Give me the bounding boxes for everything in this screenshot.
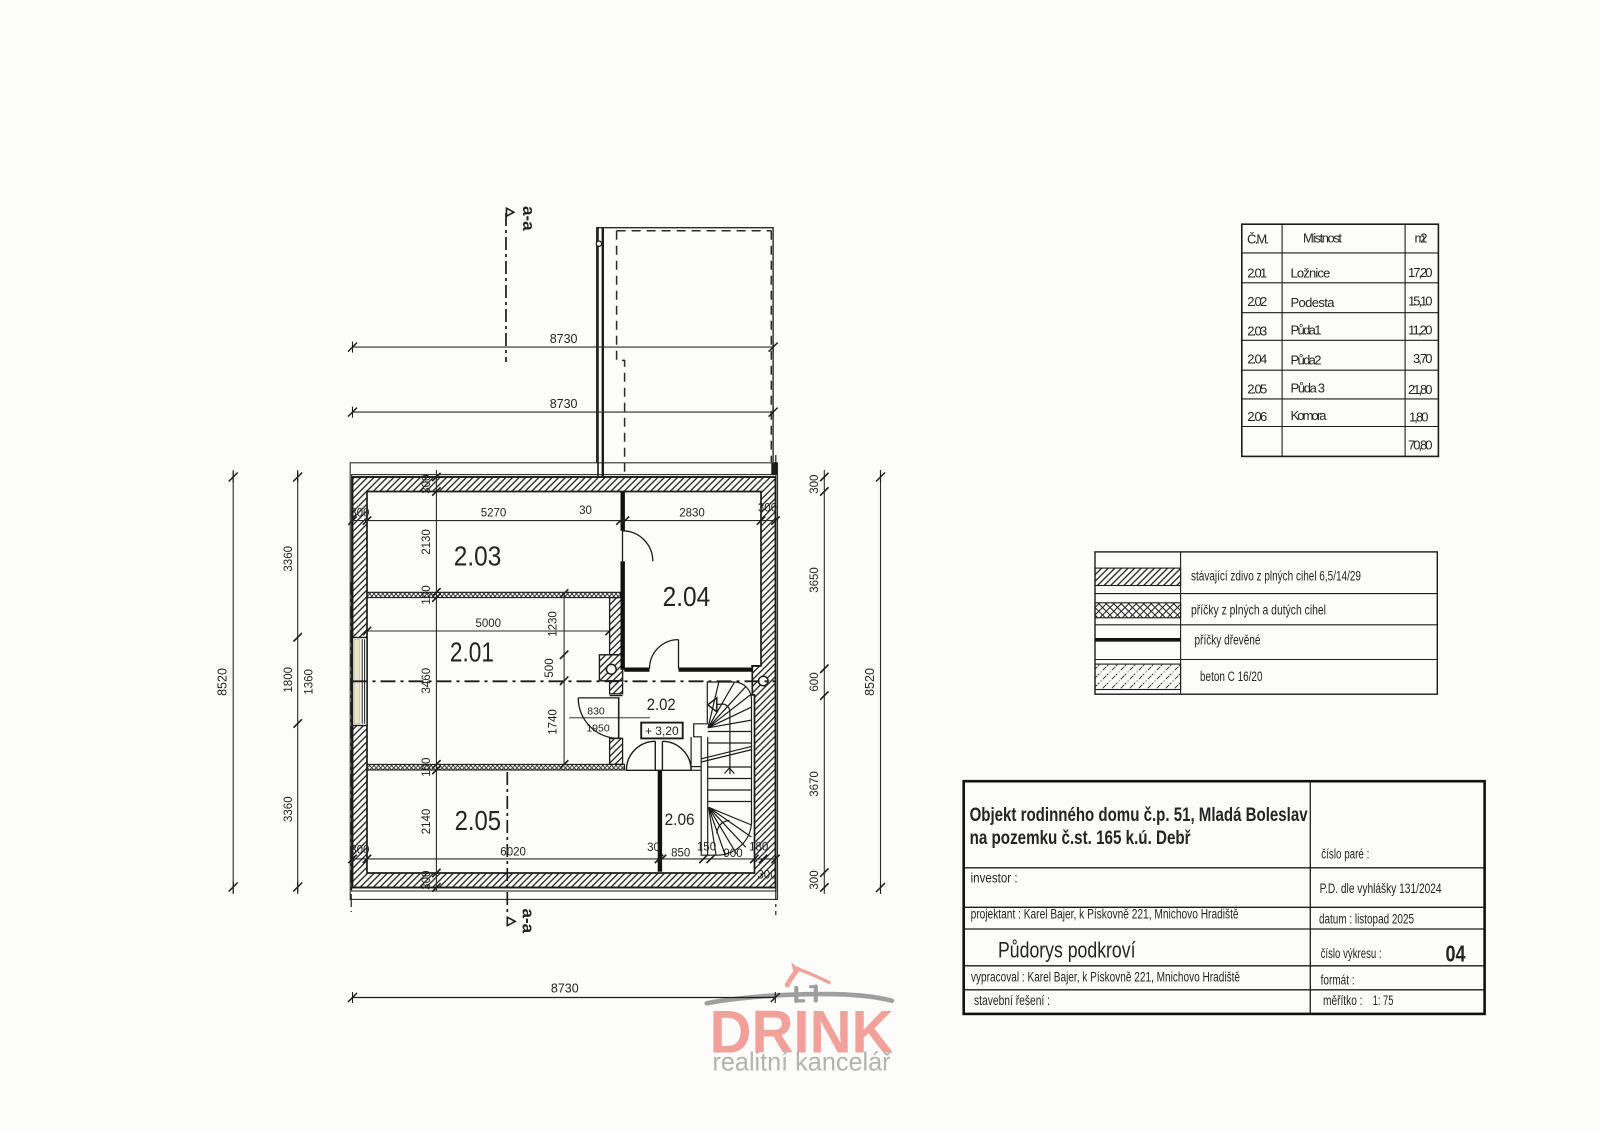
svg-text:17,20: 17,20 xyxy=(1408,265,1433,280)
svg-text:1360: 1360 xyxy=(303,669,315,695)
svg-text:+ 3,20: + 3,20 xyxy=(645,724,679,738)
svg-text:2.01: 2.01 xyxy=(450,637,494,668)
svg-text:realitní kancelář: realitní kancelář xyxy=(713,1047,892,1077)
svg-text:2.05: 2.05 xyxy=(1247,382,1267,397)
svg-text:Č.M.: Č.M. xyxy=(1247,232,1269,247)
svg-text:8520: 8520 xyxy=(863,668,877,696)
svg-text:70,80: 70,80 xyxy=(1408,438,1433,453)
svg-text:8730: 8730 xyxy=(550,397,578,411)
svg-text:beton C 16/20: beton C 16/20 xyxy=(1200,669,1263,684)
svg-text:150: 150 xyxy=(697,842,716,854)
svg-text:1,80: 1,80 xyxy=(1409,410,1429,425)
svg-text:300: 300 xyxy=(421,475,433,494)
svg-text:04: 04 xyxy=(1446,941,1466,967)
svg-text:30: 30 xyxy=(647,842,660,854)
svg-text:3650: 3650 xyxy=(809,567,821,593)
svg-text:2.04: 2.04 xyxy=(663,581,711,612)
svg-text:Místnost: Místnost xyxy=(1303,231,1342,246)
svg-text:300: 300 xyxy=(350,845,369,857)
svg-text:300: 300 xyxy=(757,870,776,882)
svg-text:15,10: 15,10 xyxy=(1408,294,1433,309)
svg-text:600: 600 xyxy=(809,672,821,691)
svg-text:3670: 3670 xyxy=(809,771,821,797)
svg-text:datum : listopad 2025: datum : listopad 2025 xyxy=(1319,912,1414,927)
svg-text:Půdorys podkroví: Půdorys podkroví xyxy=(998,938,1136,963)
svg-text:projektant : Karel Bajer, k Pí: projektant : Karel Bajer, k Pískovně 221… xyxy=(971,907,1239,922)
svg-text:vypracoval : Karel Bajer, k Pí: vypracoval : Karel Bajer, k Pískovně 221… xyxy=(971,970,1240,985)
svg-text:2.06: 2.06 xyxy=(665,810,695,829)
svg-text:stávající zdivo z plných cihel: stávající zdivo z plných cihel 6,5/14/29 xyxy=(1191,569,1361,584)
svg-text:Půda1: Půda1 xyxy=(1291,323,1322,338)
svg-text:1740: 1740 xyxy=(548,709,560,735)
svg-text:8730: 8730 xyxy=(551,982,579,996)
svg-text:a-a: a-a xyxy=(519,909,538,934)
svg-text:3460: 3460 xyxy=(421,668,433,694)
svg-text:Půda 3: Půda 3 xyxy=(1291,381,1326,396)
svg-text:1800: 1800 xyxy=(283,667,295,693)
svg-text:300: 300 xyxy=(809,870,821,889)
svg-text:a-a: a-a xyxy=(519,206,538,231)
svg-text:3360: 3360 xyxy=(283,796,295,822)
svg-text:1950: 1950 xyxy=(586,723,610,735)
svg-text:2.02: 2.02 xyxy=(647,695,676,714)
svg-text:na pozemku č.st. 165 k.ú. Debř: na pozemku č.st. 165 k.ú. Debř xyxy=(970,828,1191,849)
svg-text:stavební řešení :: stavební řešení : xyxy=(974,993,1050,1008)
svg-text:8730: 8730 xyxy=(550,332,578,346)
svg-text:5270: 5270 xyxy=(481,508,507,520)
svg-text:11,20: 11,20 xyxy=(1408,323,1433,338)
svg-text:příčky z plných a dutých cihel: příčky z plných a dutých cihel xyxy=(1191,603,1326,618)
svg-text:2.03: 2.03 xyxy=(454,541,502,572)
svg-text:2.03: 2.03 xyxy=(1247,324,1267,339)
svg-text:2130: 2130 xyxy=(421,529,433,555)
svg-text:100: 100 xyxy=(421,758,433,777)
svg-text:180: 180 xyxy=(749,842,768,854)
svg-text:Půda2: Půda2 xyxy=(1291,353,1322,368)
svg-text:8520: 8520 xyxy=(216,668,230,696)
svg-text:příčky dřevěné: příčky dřevěné xyxy=(1195,633,1261,648)
svg-text:1230: 1230 xyxy=(548,611,560,637)
svg-text:číslo výkresu :: číslo výkresu : xyxy=(1321,946,1382,961)
svg-text:2830: 2830 xyxy=(679,508,705,520)
svg-text:2.04: 2.04 xyxy=(1247,352,1267,367)
svg-text:5000: 5000 xyxy=(476,618,502,630)
svg-text:500: 500 xyxy=(544,658,556,677)
svg-text:2.05: 2.05 xyxy=(455,805,502,836)
svg-text:3360: 3360 xyxy=(283,546,295,572)
svg-text:2.01: 2.01 xyxy=(1247,266,1267,281)
svg-text:3,70: 3,70 xyxy=(1413,351,1433,366)
svg-text:300: 300 xyxy=(758,503,777,515)
svg-text:6020: 6020 xyxy=(500,847,526,859)
svg-text:Ložnice: Ložnice xyxy=(1291,266,1331,281)
svg-text:830: 830 xyxy=(587,706,605,718)
svg-text:900: 900 xyxy=(723,848,742,860)
svg-text:30: 30 xyxy=(579,505,592,517)
svg-text:Podesta: Podesta xyxy=(1291,295,1336,310)
svg-text:P.D. dle vyhlášky 131/2024: P.D. dle vyhlášky 131/2024 xyxy=(1320,881,1442,896)
svg-text:300: 300 xyxy=(809,475,821,494)
svg-text:Objekt rodinného domu č.p. 51,: Objekt rodinného domu č.p. 51, Mladá Bol… xyxy=(970,805,1308,826)
svg-text:2.02: 2.02 xyxy=(1247,294,1267,309)
svg-text:1: 75: 1: 75 xyxy=(1373,993,1394,1008)
svg-text:300: 300 xyxy=(421,871,433,890)
svg-text:2140: 2140 xyxy=(421,809,433,835)
svg-text:Komora: Komora xyxy=(1291,408,1328,423)
svg-text:21,80: 21,80 xyxy=(1408,382,1433,397)
svg-text:300: 300 xyxy=(350,508,369,520)
svg-text:číslo paré :: číslo paré : xyxy=(1321,847,1369,862)
svg-text:2.06: 2.06 xyxy=(1247,409,1267,424)
svg-text:formát :: formát : xyxy=(1321,973,1355,988)
svg-text:měřítko :: měřítko : xyxy=(1323,993,1363,1008)
svg-text:investor :: investor : xyxy=(971,871,1018,886)
svg-text:850: 850 xyxy=(671,848,690,860)
svg-text:m2: m2 xyxy=(1415,231,1428,246)
svg-text:100: 100 xyxy=(421,585,433,604)
